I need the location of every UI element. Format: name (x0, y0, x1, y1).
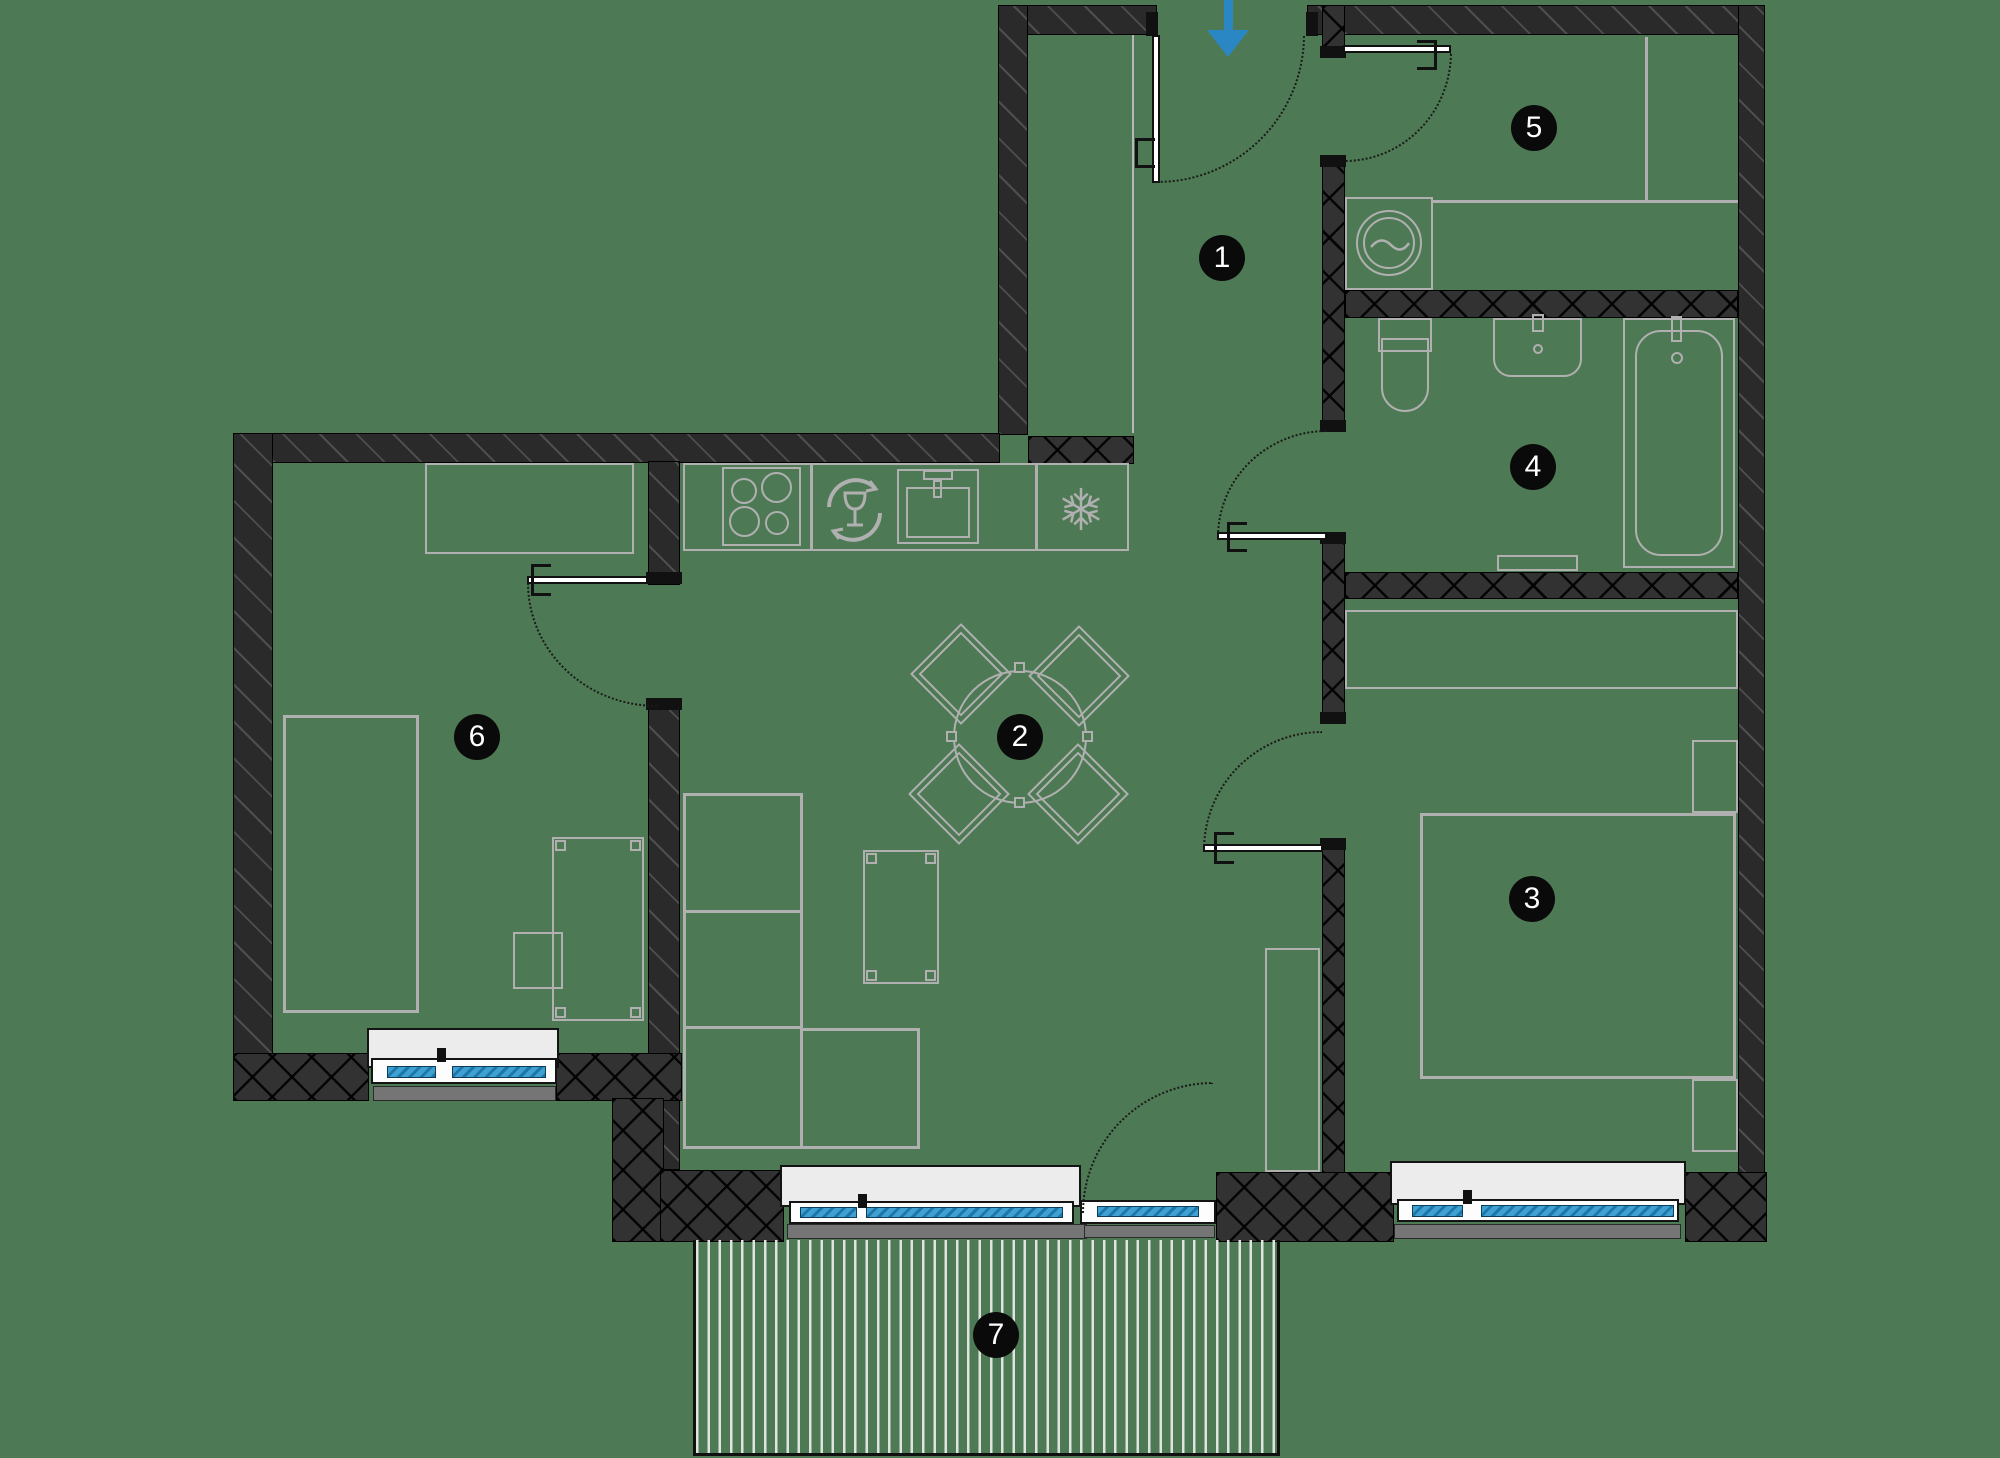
wall-step-connector (612, 1098, 664, 1242)
bathtub-inner (1635, 330, 1723, 556)
room3-window-handle (1463, 1190, 1472, 1204)
dishwasher-icon (820, 475, 890, 545)
hall-floor-line (1132, 35, 1134, 433)
room6-wardrobe (425, 463, 634, 554)
terrace-door-swing (1082, 1082, 1213, 1213)
basin-faucet-icon (1532, 314, 1544, 332)
sofa (683, 793, 803, 1149)
hob-burner-icon (761, 472, 792, 503)
wall-hall-left (998, 5, 1028, 435)
entrance-door-swing (1157, 35, 1305, 183)
room6-window-outer-sill (373, 1086, 556, 1101)
sofa-divider (683, 1026, 803, 1029)
room3-window-glass (1481, 1205, 1674, 1217)
terrace-door-outer-sill (1084, 1225, 1215, 1238)
entrance-arrow-icon (1224, 0, 1233, 32)
room6-desk-chair (513, 932, 563, 989)
dining-table-tab (1082, 731, 1093, 742)
sofa-corner-module (800, 1028, 920, 1149)
bathroom-radiator (1497, 555, 1578, 571)
room-badge-7: 7 (973, 1312, 1019, 1358)
living-window-handle (858, 1194, 867, 1208)
basin-drain (1533, 344, 1543, 354)
washing-machine-wave-icon (1363, 217, 1415, 269)
room6-window-glass (452, 1066, 546, 1078)
room6-desk-corner (555, 840, 566, 851)
jamb-room3-top (1320, 712, 1346, 724)
room6-desk (552, 837, 644, 1021)
room5-counter-edge-h (1433, 200, 1738, 203)
room3-bed (1420, 813, 1736, 1079)
wall-right-exterior (1738, 5, 1765, 1242)
living-window-glass (866, 1207, 1063, 1218)
hob-burner-icon (765, 511, 789, 535)
coffee-table-leg (925, 970, 936, 981)
hob-burner-icon (731, 478, 757, 504)
room3-window-outer-sill (1394, 1224, 1681, 1239)
jamb-room5-bottom (1320, 155, 1346, 167)
dining-table-tab (946, 731, 957, 742)
room-badge-5: 5 (1511, 105, 1557, 151)
room6-door-swing (527, 583, 657, 707)
hob-burner-icon (729, 506, 760, 537)
room3-wardrobe (1345, 610, 1738, 689)
room6-desk-corner (555, 1007, 566, 1018)
room6-window-glass (387, 1066, 436, 1078)
kitchen-faucet-icon (923, 470, 953, 480)
living-cabinet (1265, 948, 1320, 1172)
coffee-table (863, 850, 939, 984)
room6-window-handle (437, 1048, 446, 1062)
wall-hall-seg-low (1322, 538, 1345, 723)
room-badge-4: 4 (1510, 444, 1556, 490)
room5-counter-edge-v (1645, 37, 1648, 203)
room6-bed (283, 715, 419, 1013)
entrance-door-handle (1135, 138, 1155, 168)
wall-bottom-center (1216, 1172, 1394, 1242)
dining-table-tab (1014, 797, 1025, 808)
fridge-snowflake-icon (1058, 486, 1104, 532)
coffee-table-leg (866, 970, 877, 981)
jamb-room3-bottom (1320, 838, 1346, 850)
wall-top-room5 (1307, 5, 1765, 35)
room-badge-2: 2 (997, 714, 1043, 760)
wall-hall-seg-top (1322, 5, 1345, 52)
toilet-bowl (1381, 338, 1429, 412)
room-badge-1: 1 (1199, 235, 1245, 281)
kitchen-faucet-stem (933, 480, 942, 498)
bathtub-faucet-icon (1671, 316, 1682, 342)
wall-room6-living-upper (648, 461, 680, 585)
room3-door-swing (1203, 731, 1322, 850)
wall-left-exterior (233, 433, 273, 1055)
coffee-table-leg (925, 853, 936, 864)
entrance-jamb-right (1306, 12, 1318, 36)
room6-desk-corner (630, 1007, 641, 1018)
wall-bottom-right (1685, 1172, 1767, 1242)
kitchen-counter-divider-2 (1035, 463, 1038, 550)
wall-hall-seg-mid (1322, 162, 1345, 432)
bathroom-door-swing (1217, 430, 1327, 537)
wall-bathroom-room3 (1345, 572, 1738, 599)
sofa-divider (683, 910, 803, 913)
dining-table-tab (1014, 662, 1025, 673)
room-badge-3: 3 (1509, 876, 1555, 922)
room3-nightstand-bottom (1692, 1079, 1738, 1152)
room-badge-6: 6 (454, 714, 500, 760)
living-window-glass (800, 1207, 857, 1218)
bathtub-drain (1671, 352, 1683, 364)
entrance-jamb-left (1146, 12, 1158, 36)
wall-above-fridge (1028, 436, 1134, 464)
room6-desk-corner (630, 840, 641, 851)
room3-window-glass (1412, 1205, 1463, 1217)
kitchen-counter-divider-1 (810, 463, 813, 550)
wall-room6-bottom-left (233, 1053, 369, 1101)
living-window-outer-sill (787, 1224, 1087, 1239)
room3-nightstand-top (1692, 740, 1738, 813)
wall-room3-left (1322, 843, 1345, 1175)
wall-room6-bottom-right (556, 1053, 682, 1101)
coffee-table-leg (866, 853, 877, 864)
wall-top-kitchen-room6 (235, 433, 1000, 463)
floor-plan: 1 2 3 4 5 6 7 (0, 0, 2000, 1458)
room5-door-swing (1345, 52, 1452, 162)
wall-living-bottom-left (660, 1170, 784, 1242)
